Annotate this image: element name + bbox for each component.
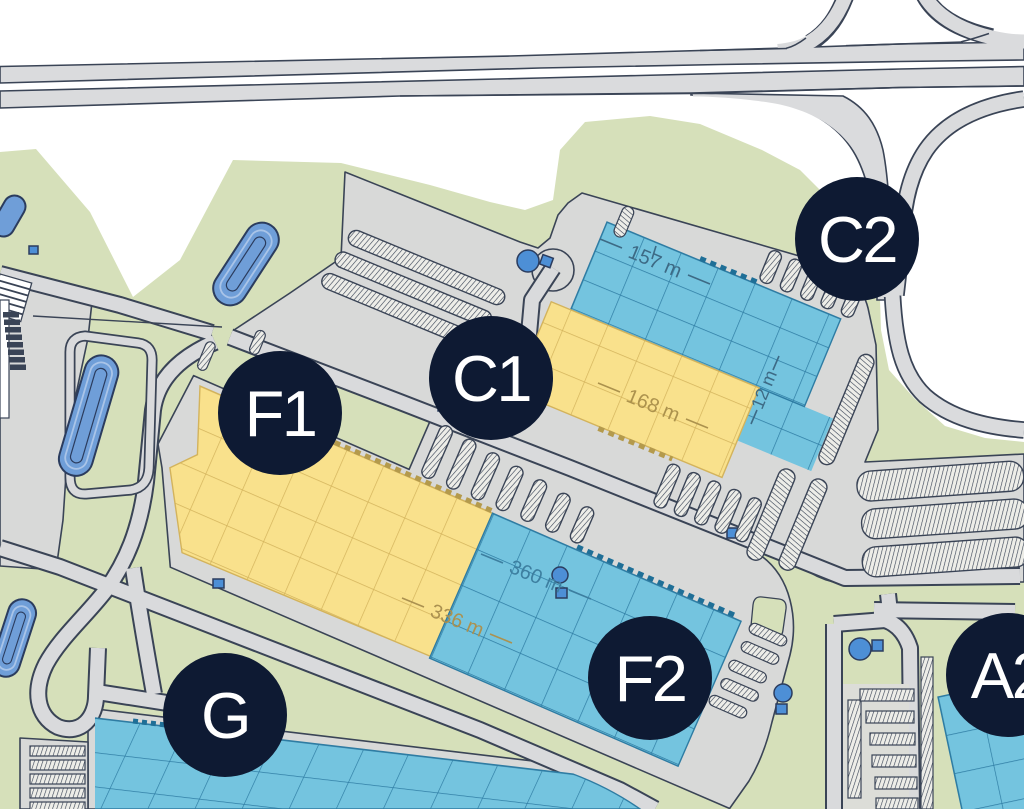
svg-text:C1: C1 [452,342,530,415]
svg-text:F1: F1 [245,377,316,450]
svg-text:G: G [201,679,249,752]
svg-text:A2: A2 [971,639,1024,712]
svg-text:F2: F2 [615,642,686,715]
svg-text:C2: C2 [818,203,896,276]
